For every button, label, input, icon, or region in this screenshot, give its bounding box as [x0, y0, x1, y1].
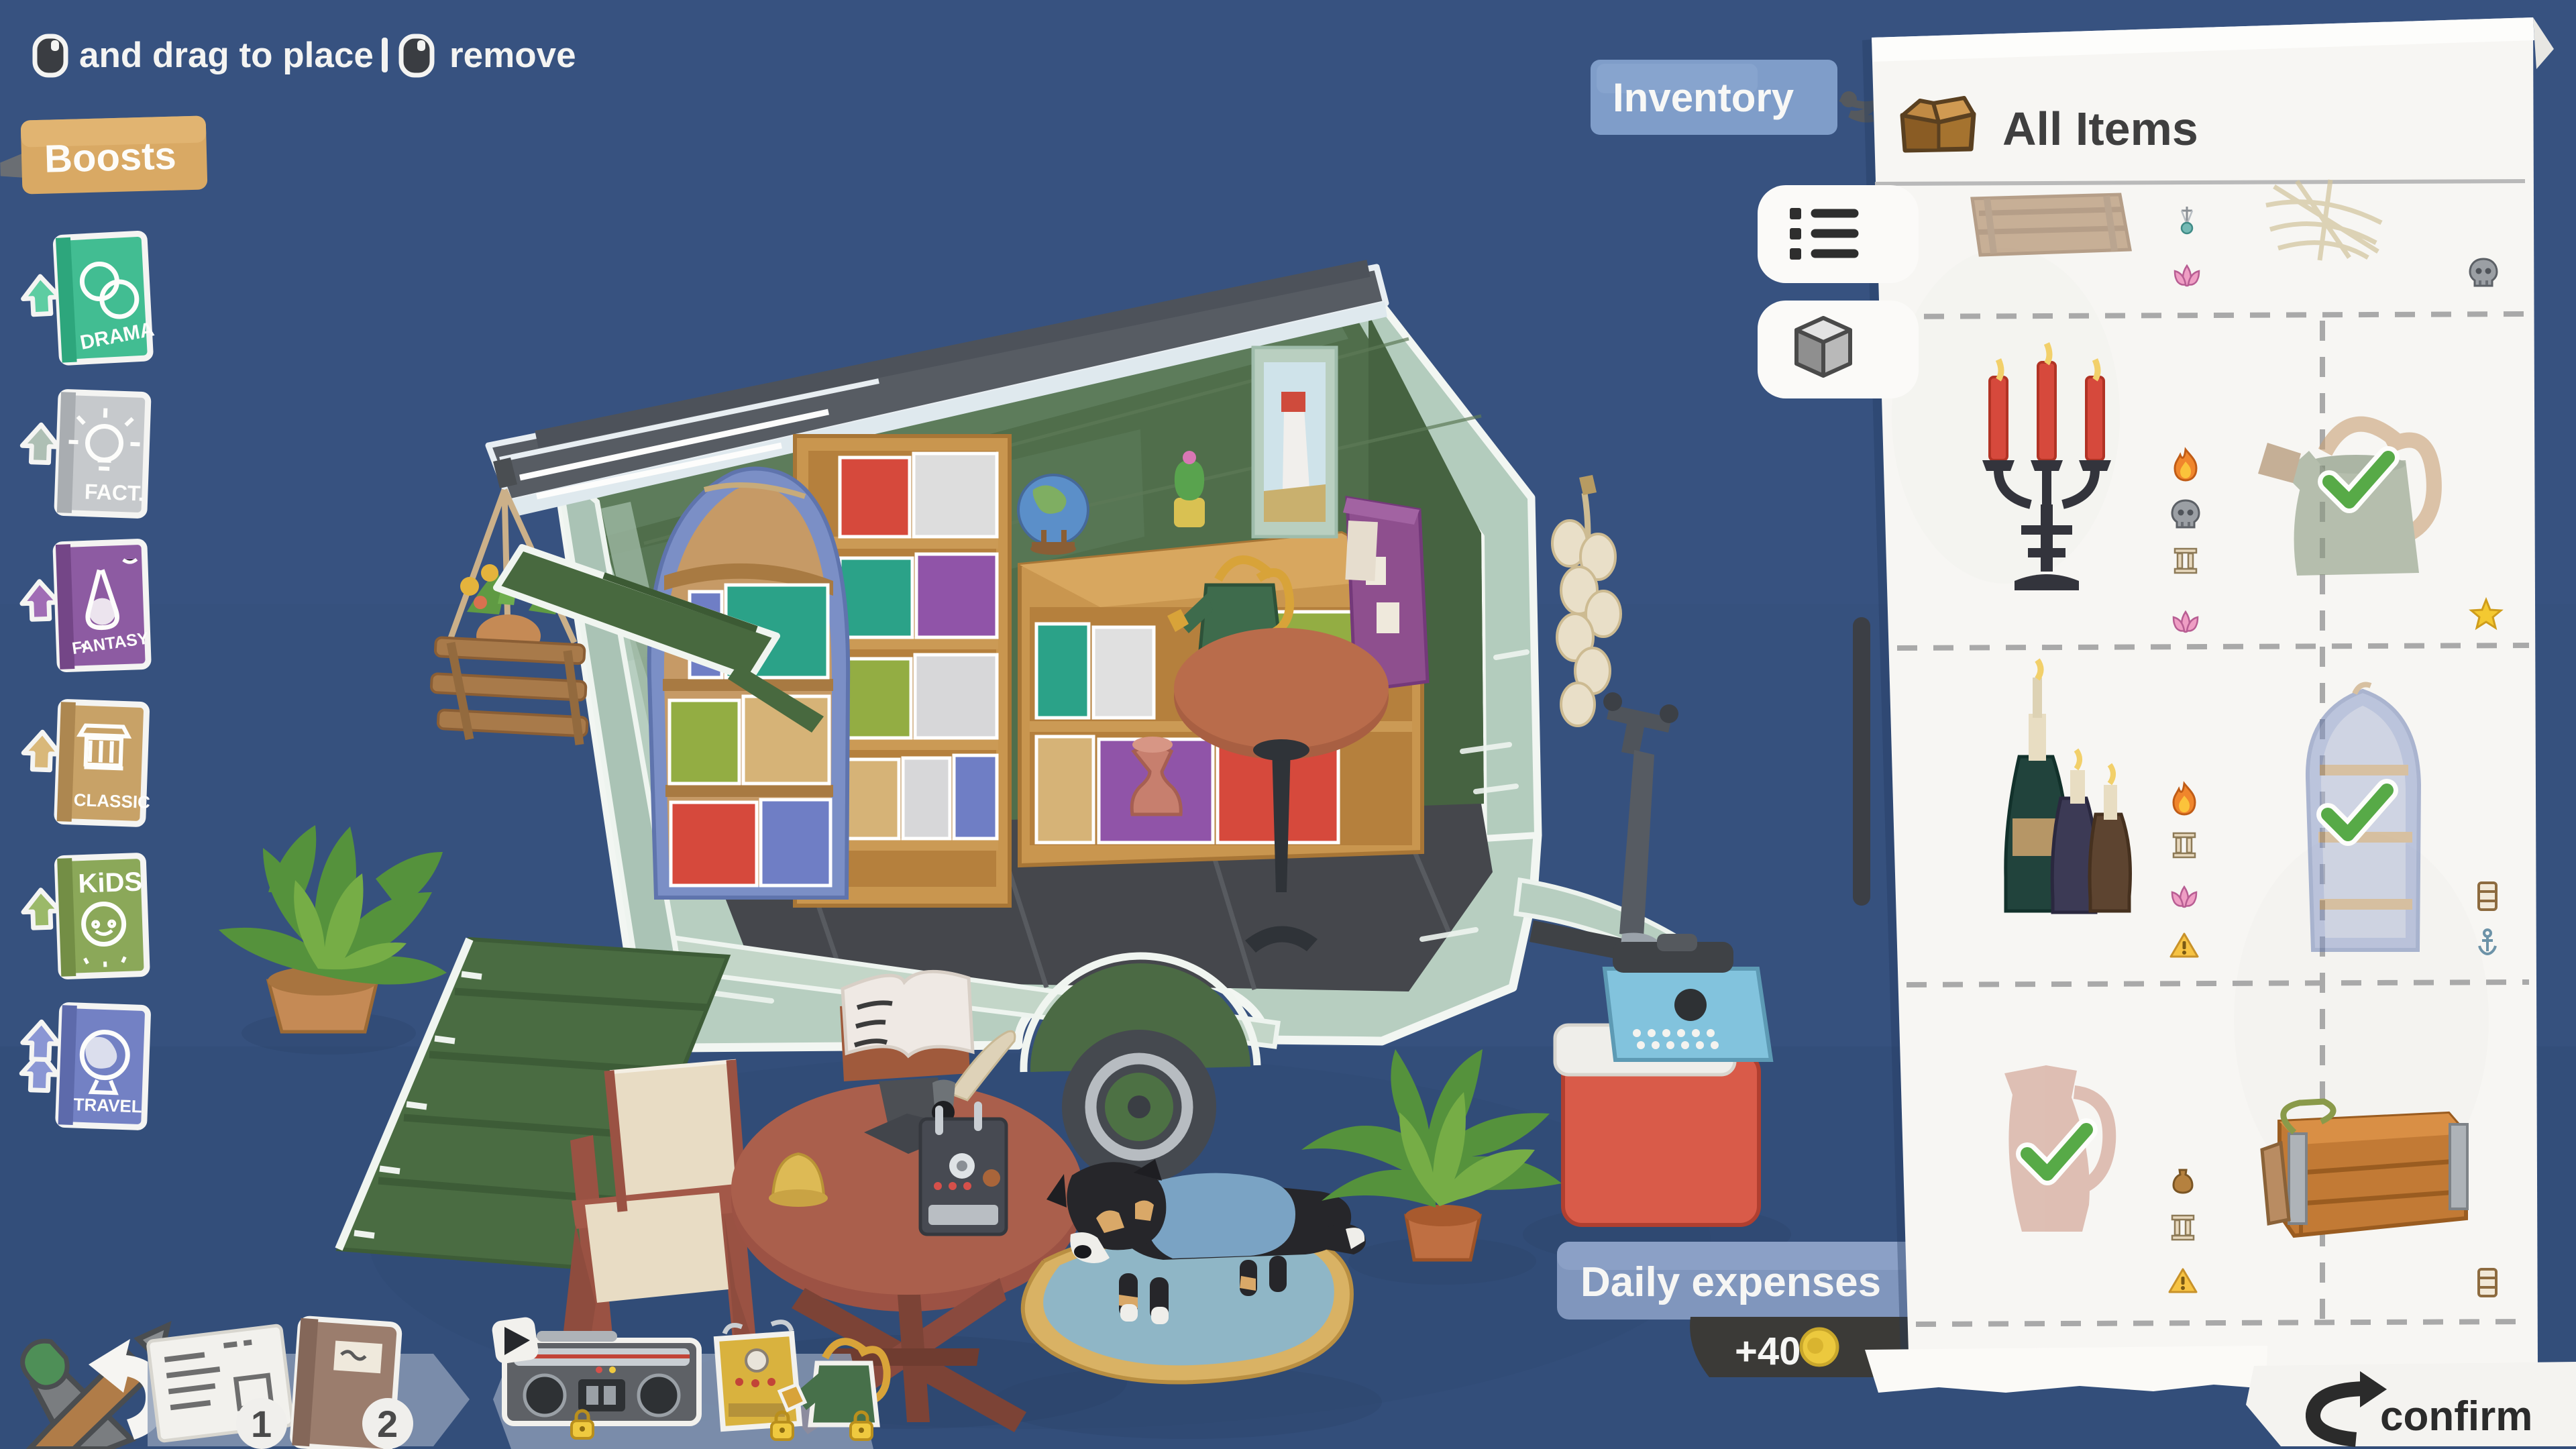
- svg-text:+40: +40: [1735, 1330, 1801, 1373]
- svg-text:2: 2: [377, 1403, 398, 1445]
- svg-text:KiDS: KiDS: [78, 867, 143, 898]
- svg-text:Boosts: Boosts: [44, 134, 176, 181]
- svg-text:All Items: All Items: [2002, 103, 2198, 155]
- svg-text:remove: remove: [449, 36, 576, 75]
- svg-text:confirm: confirm: [2380, 1393, 2532, 1440]
- svg-text:and drag to place: and drag to place: [79, 36, 374, 75]
- svg-text:FACT.: FACT.: [84, 480, 144, 506]
- svg-text:Inventory: Inventory: [1613, 75, 1794, 120]
- svg-text:1: 1: [251, 1403, 272, 1445]
- svg-text:TRAVEL: TRAVEL: [73, 1094, 142, 1117]
- svg-text:Daily expenses: Daily expenses: [1580, 1259, 1881, 1305]
- svg-text:CLASSIC: CLASSIC: [73, 790, 150, 812]
